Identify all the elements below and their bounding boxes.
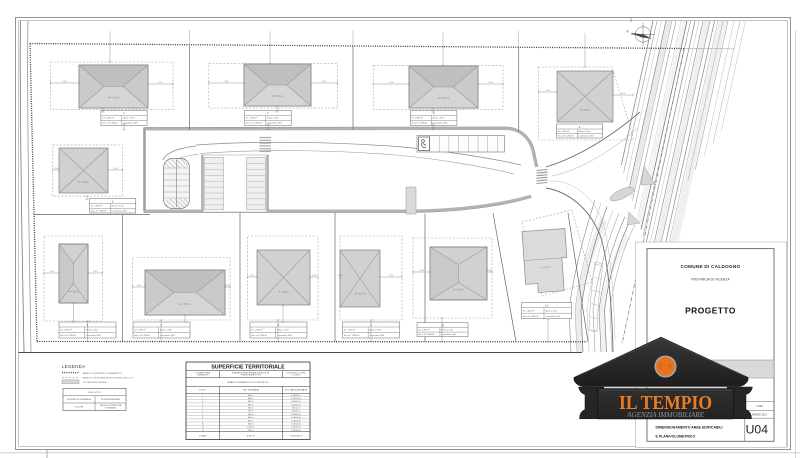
svg-text:AGENZIA IMMOBILIARE: AGENZIA IMMOBILIARE — [626, 411, 705, 419]
